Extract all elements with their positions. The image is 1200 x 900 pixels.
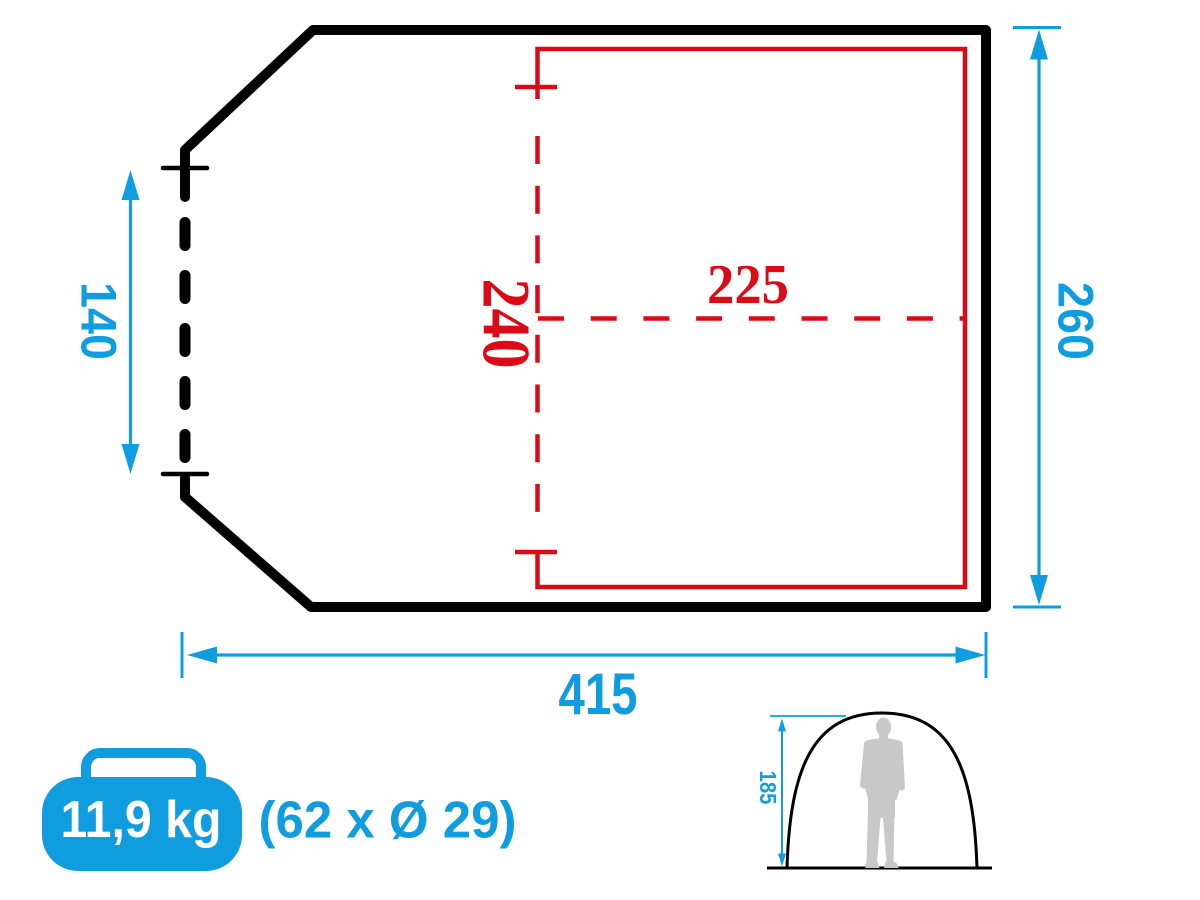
svg-text:240: 240	[468, 279, 544, 369]
svg-text:415: 415	[559, 662, 638, 727]
svg-text:(62 x Ø 29): (62 x Ø 29)	[259, 791, 517, 849]
svg-text:185: 185	[755, 771, 781, 805]
svg-text:260: 260	[1047, 282, 1103, 360]
svg-text:140: 140	[70, 282, 126, 360]
svg-text:11,9 kg: 11,9 kg	[61, 790, 222, 848]
svg-text:225: 225	[707, 254, 789, 316]
